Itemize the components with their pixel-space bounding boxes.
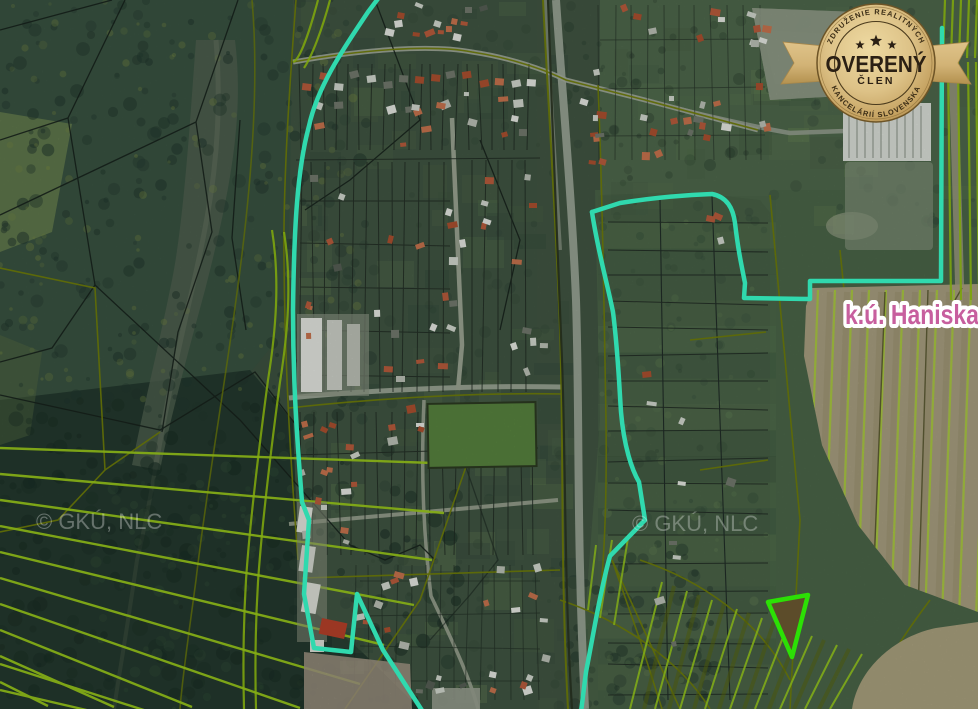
svg-text:k.ú. Haniska: k.ú. Haniska [845,300,978,331]
svg-text:© GKÚ, NLC: © GKÚ, NLC [36,509,162,534]
svg-text:OVERENÝ: OVERENÝ [825,51,926,78]
svg-text:© GKÚ, NLC: © GKÚ, NLC [632,511,758,536]
svg-text:ČLEN: ČLEN [857,74,894,87]
